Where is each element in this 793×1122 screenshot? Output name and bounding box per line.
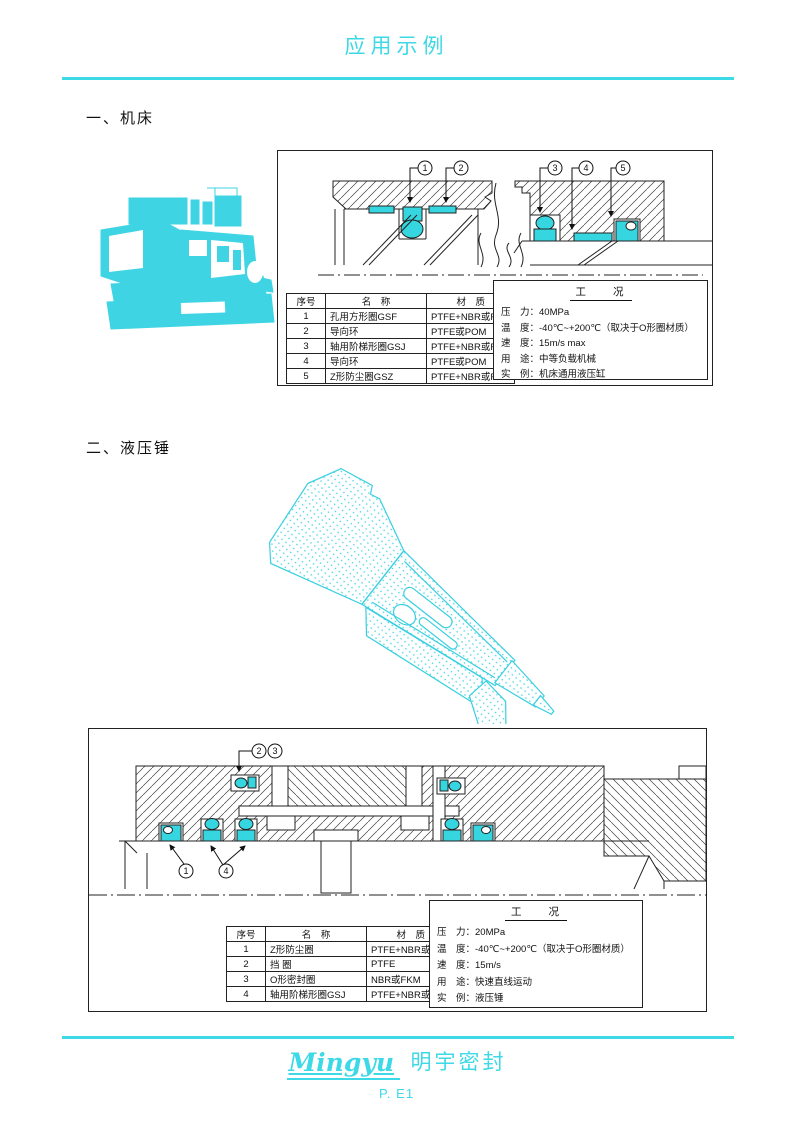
table-row: 3 轴用阶梯形圈GSJ PTFE+NBR或FKM	[287, 339, 515, 354]
guide-ring-seal	[574, 233, 612, 241]
cell-name: 轴用阶梯形圈GSJ	[266, 987, 367, 1002]
brand-logo-cn: 明宇密封	[410, 1051, 506, 1074]
hydraulic-hammer-illustration	[268, 424, 573, 724]
cell-no: 1	[227, 942, 266, 957]
catalog-page: 应用示例 一、机床	[0, 0, 793, 1122]
cell-name: 导向环	[326, 324, 427, 339]
cell-name: Z形防尘圈	[266, 942, 367, 957]
conditions-title: 工 况	[570, 284, 632, 301]
condition-temperature: 温 度：-40℃~+200℃（取决于O形圈材质）	[501, 321, 707, 337]
section-heading-hydraulic-hammer: 二、液压锤	[86, 437, 171, 458]
table-row: 4 导向环 PTFE或POM	[287, 354, 515, 369]
chisel-shank	[321, 841, 351, 893]
parts-table-machine-tool: 序号 名 称 材 质 1 孔用方形圈GSF PTFE+NBR或FKM 2 导向环…	[286, 293, 515, 384]
machine-tool-diagram-panel: 1 2 3 4 5 序号 名 称 材 质 1 孔用方形圈GSF PTFE+NBR…	[277, 150, 713, 386]
condition-speed: 速 度：15m/s max	[501, 336, 707, 352]
hydraulic-hammer-diagram-panel: 2 3 1 4 序号 名 称 材 质 1 Z形防尘圈 PTFE+NBR或FKM	[88, 728, 707, 1012]
callout-5: 5	[620, 163, 625, 173]
condition-pressure: 压 力：40MPa	[501, 305, 707, 321]
cell-no: 5	[287, 369, 326, 384]
hammer-end-block	[604, 779, 706, 881]
table-row: 3 O形密封圈 NBR或FKM	[227, 972, 455, 987]
hydraulic-hammer-cross-section: 2 3 1 4	[89, 741, 706, 911]
cell-no: 2	[287, 324, 326, 339]
callout-3: 3	[552, 163, 557, 173]
callout-3: 3	[272, 746, 277, 756]
cell-no: 3	[227, 972, 266, 987]
condition-speed: 速 度：15m/s	[437, 958, 642, 975]
o-ring	[536, 216, 554, 230]
callout-4: 4	[223, 866, 228, 876]
guide-ring-seal	[429, 206, 456, 213]
col-header-no: 序号	[227, 927, 266, 942]
square-ring-seal	[403, 207, 422, 221]
callout-2: 2	[256, 746, 261, 756]
o-ring	[449, 781, 461, 791]
brand-logo-en: Mingyu	[287, 1048, 401, 1080]
table-row: 4 轴用阶梯形圈GSJ PTFE+NBR或FKM	[227, 987, 455, 1002]
cell-no: 3	[287, 339, 326, 354]
cell-name: O形密封圈	[266, 972, 367, 987]
working-conditions-machine-tool: 工 况 压 力：40MPa 温 度：-40℃~+200℃（取决于O形圈材质） 速…	[493, 280, 708, 380]
cell-name: 孔用方形圈GSF	[326, 309, 427, 324]
cell-name: 导向环	[326, 354, 427, 369]
cell-no: 1	[287, 309, 326, 324]
backup-ring-seal	[440, 780, 448, 791]
cell-no: 4	[227, 987, 266, 1002]
cell-name: Z形防尘圈GSZ	[326, 369, 427, 384]
conditions-title: 工 况	[505, 904, 567, 921]
o-ring	[235, 778, 247, 788]
o-ring	[239, 819, 253, 830]
condition-example: 实 例：液压锤	[437, 991, 642, 1008]
col-header-no: 序号	[287, 294, 326, 309]
callout-1: 1	[183, 866, 188, 876]
condition-temperature: 温 度：-40℃~+200℃（取决于O形圈材质）	[437, 942, 642, 959]
condition-usage: 用 途：中等负载机械	[501, 352, 707, 368]
machine-tool-cross-section: 1 2 3 4 5	[278, 153, 712, 289]
page-title: 应用示例	[0, 30, 793, 60]
step-seal	[534, 229, 556, 241]
o-ring	[445, 819, 459, 830]
page-number: P. E1	[0, 1086, 793, 1101]
condition-example: 实 例：机床通用液压缸	[501, 367, 707, 383]
machine-tool-illustration	[85, 180, 275, 335]
parts-table-hydraulic-hammer: 序号 名 称 材 质 1 Z形防尘圈 PTFE+NBR或FKM 2 挡 圈 PT…	[226, 926, 455, 1002]
table-row: 1 孔用方形圈GSF PTFE+NBR或FKM	[287, 309, 515, 324]
col-header-name: 名 称	[326, 294, 427, 309]
condition-pressure: 压 力：20MPa	[437, 925, 642, 942]
section-heading-machine-tool: 一、机床	[86, 107, 154, 128]
cell-no: 4	[287, 354, 326, 369]
o-ring	[205, 819, 219, 830]
table-row: 2 挡 圈 PTFE	[227, 957, 455, 972]
cell-name: 挡 圈	[266, 957, 367, 972]
cell-no: 2	[227, 957, 266, 972]
callout-1: 1	[422, 163, 427, 173]
step-seal	[443, 830, 461, 841]
step-seal	[237, 830, 255, 841]
working-conditions-hydraulic-hammer: 工 况 压 力：20MPa 温 度：-40℃~+200℃（取决于O形圈材质） 速…	[429, 900, 643, 1008]
step-seal	[203, 830, 221, 841]
callout-2: 2	[458, 163, 463, 173]
table-row: 5 Z形防尘圈GSZ PTFE+NBR或FKM	[287, 369, 515, 384]
condition-usage: 用 途：快速直线运动	[437, 975, 642, 992]
bottom-divider	[62, 1036, 734, 1039]
cylinder-wall-block	[333, 181, 492, 209]
callout-4: 4	[583, 163, 588, 173]
footer-brand: Mingyu 明宇密封	[0, 1046, 793, 1077]
col-header-name: 名 称	[266, 927, 367, 942]
backup-ring-seal	[248, 777, 256, 788]
table-row: 1 Z形防尘圈 PTFE+NBR或FKM	[227, 942, 455, 957]
cell-name: 轴用阶梯形圈GSJ	[326, 339, 427, 354]
top-divider	[62, 77, 734, 80]
table-row: 2 导向环 PTFE或POM	[287, 324, 515, 339]
guide-ring-seal	[369, 206, 394, 213]
